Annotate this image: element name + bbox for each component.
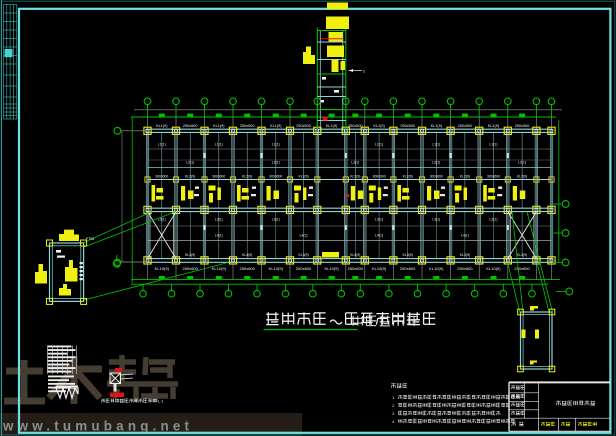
svg-text:L1(1): L1(1) xyxy=(158,143,166,147)
svg-text:250x500: 250x500 xyxy=(400,124,415,128)
svg-text:L4(1): L4(1) xyxy=(461,234,469,238)
svg-text:KL3(9): KL3(9) xyxy=(350,253,360,257)
svg-text:250x600: 250x600 xyxy=(514,266,530,271)
svg-text:250x500: 250x500 xyxy=(296,124,311,128)
svg-text:KL2(9): KL2(9) xyxy=(517,174,527,178)
svg-text:250x600: 250x600 xyxy=(240,266,256,271)
svg-text:L2(1): L2(1) xyxy=(351,161,359,165)
svg-text:KL10(9): KL10(9) xyxy=(486,266,501,271)
svg-text:KL1(9): KL1(9) xyxy=(431,124,443,128)
svg-text:L3(1): L3(1) xyxy=(375,218,383,222)
svg-text:300x600: 300x600 xyxy=(373,174,386,178)
svg-text:L3(1): L3(1) xyxy=(215,218,223,222)
svg-text:KL2(9): KL2(9) xyxy=(185,174,195,178)
svg-text:L-1: L-1 xyxy=(158,399,164,403)
svg-text:L1(1): L1(1) xyxy=(375,143,383,147)
svg-text:KL1(9): KL1(9) xyxy=(488,124,500,128)
svg-text:2.: 2. xyxy=(392,403,395,408)
svg-text:4.: 4. xyxy=(392,419,395,424)
svg-text:2: 2 xyxy=(363,70,365,74)
svg-text:L1(1): L1(1) xyxy=(432,143,440,147)
svg-text:L4(1): L4(1) xyxy=(215,234,223,238)
svg-text:KL1(9): KL1(9) xyxy=(326,124,338,128)
svg-text:L2(1): L2(1) xyxy=(272,161,280,165)
svg-text:KL10(9): KL10(9) xyxy=(324,266,339,271)
svg-text:L2(1): L2(1) xyxy=(518,161,526,165)
svg-text:KL2(9): KL2(9) xyxy=(299,174,309,178)
svg-text:KL10(9): KL10(9) xyxy=(212,266,227,271)
svg-text:300x600: 300x600 xyxy=(430,174,443,178)
svg-text:1.: 1. xyxy=(392,395,395,400)
svg-text:250x500: 250x500 xyxy=(515,124,530,128)
svg-text:L2(1): L2(1) xyxy=(432,161,440,165)
svg-text:L1(1): L1(1) xyxy=(215,143,223,147)
svg-text:PTB1: PTB1 xyxy=(86,237,95,241)
svg-text:L3(1): L3(1) xyxy=(432,218,440,222)
svg-text:250x500: 250x500 xyxy=(348,124,363,128)
svg-text:250x600: 250x600 xyxy=(457,266,473,271)
svg-text:KL1(9): KL1(9) xyxy=(373,124,385,128)
svg-text:3.: 3. xyxy=(392,411,395,416)
svg-text:www.tumubang.net: www.tumubang.net xyxy=(2,419,193,434)
svg-text:KL3(9): KL3(9) xyxy=(460,253,470,257)
svg-text:KL10(9): KL10(9) xyxy=(372,266,387,271)
svg-text:300x600: 300x600 xyxy=(269,174,282,178)
svg-text:L3(1): L3(1) xyxy=(490,218,498,222)
svg-text:KL3(9): KL3(9) xyxy=(242,253,252,257)
svg-text:KL3(9): KL3(9) xyxy=(299,253,309,257)
svg-text:KL2(9): KL2(9) xyxy=(242,174,252,178)
svg-text:250x500: 250x500 xyxy=(183,124,198,128)
svg-text:300x600: 300x600 xyxy=(212,174,225,178)
svg-text:KL1(9): KL1(9) xyxy=(156,124,168,128)
svg-text:300x600: 300x600 xyxy=(487,174,500,178)
svg-text:KL10(9): KL10(9) xyxy=(429,266,444,271)
svg-text:KL3(9): KL3(9) xyxy=(517,253,527,257)
svg-text:300x600: 300x600 xyxy=(155,174,168,178)
svg-text:250x600: 250x600 xyxy=(348,266,364,271)
svg-text:L4(1): L4(1) xyxy=(300,234,308,238)
svg-text:250x600: 250x600 xyxy=(296,266,312,271)
svg-text:KL2(9): KL2(9) xyxy=(350,174,360,178)
svg-text:L1(1): L1(1) xyxy=(490,143,498,147)
svg-text:KL10(9): KL10(9) xyxy=(155,266,170,271)
svg-text:KL2(9): KL2(9) xyxy=(460,174,470,178)
svg-text:L2(1): L2(1) xyxy=(186,161,194,165)
svg-text:KL1(9): KL1(9) xyxy=(270,124,282,128)
svg-text:KL10(9): KL10(9) xyxy=(269,266,284,271)
svg-text:KL3(9): KL3(9) xyxy=(403,253,413,257)
svg-text:KL2(9): KL2(9) xyxy=(403,174,413,178)
svg-text:KL3(9): KL3(9) xyxy=(185,253,195,257)
svg-text:L3(1): L3(1) xyxy=(272,218,280,222)
svg-text:250x600: 250x600 xyxy=(400,266,416,271)
svg-text:L1(1): L1(1) xyxy=(272,143,280,147)
svg-text:250x500: 250x500 xyxy=(240,124,255,128)
svg-text:250x500: 250x500 xyxy=(458,124,473,128)
svg-text:L4(1): L4(1) xyxy=(375,234,383,238)
svg-text:KL1(9): KL1(9) xyxy=(213,124,225,128)
